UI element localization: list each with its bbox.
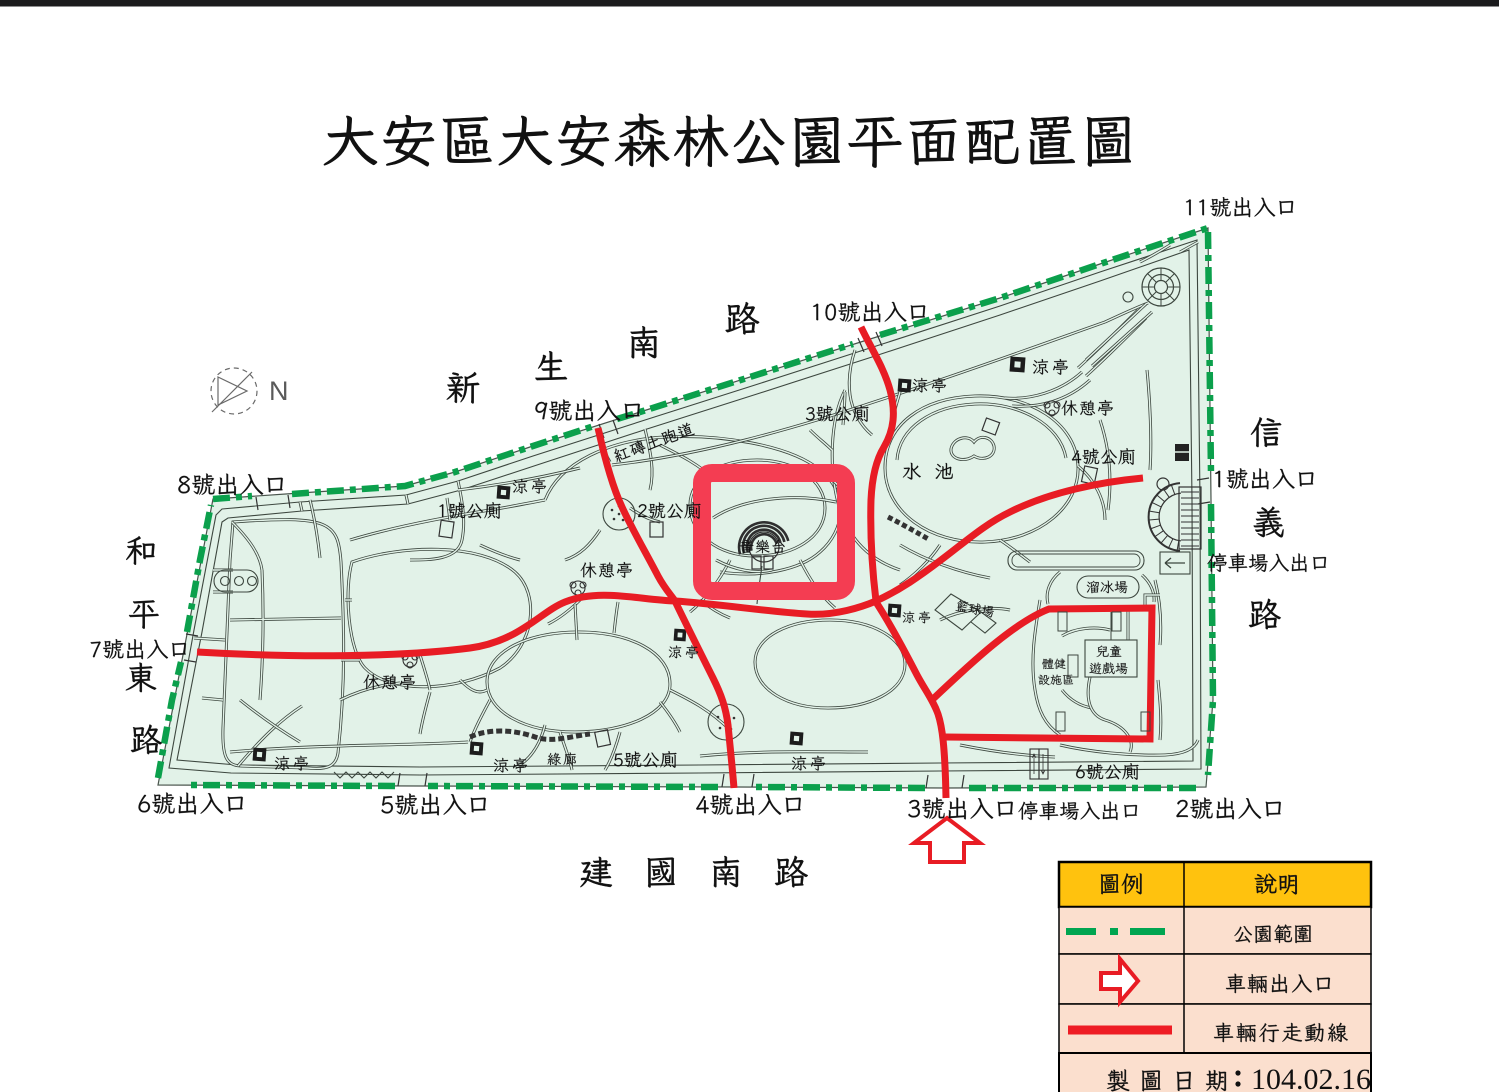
svg-text:N: N [269,376,289,406]
svg-text:104.02.16: 104.02.16 [1251,1063,1371,1092]
